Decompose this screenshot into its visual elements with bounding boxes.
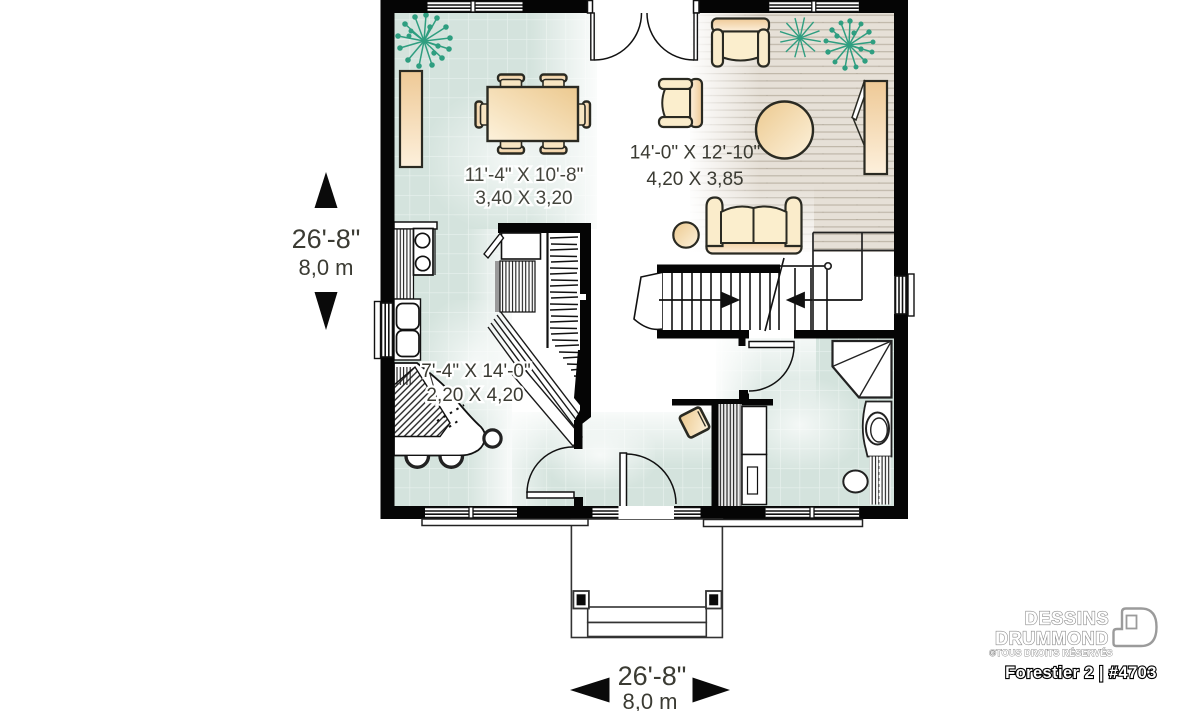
svg-text:8,0 m: 8,0 m <box>622 689 677 711</box>
svg-text:14'-0" X 12'-10": 14'-0" X 12'-10" <box>630 143 761 164</box>
svg-text:3,40 X 3,20: 3,40 X 3,20 <box>475 188 572 209</box>
svg-text:11'-4" X 10'-8": 11'-4" X 10'-8" <box>465 165 584 186</box>
svg-text:DESSINS: DESSINS <box>1025 609 1110 629</box>
svg-text:7'-4" X 14'-0": 7'-4" X 14'-0" <box>421 361 530 382</box>
svg-text:4,20 X 3,85: 4,20 X 3,85 <box>646 169 743 190</box>
svg-text:Forestier 2 | #4703: Forestier 2 | #4703 <box>1005 664 1157 682</box>
svg-text:2,20 X 4,20: 2,20 X 4,20 <box>426 385 523 406</box>
svg-text:26'-8": 26'-8" <box>292 224 361 254</box>
svg-text:26'-8": 26'-8" <box>618 661 687 691</box>
svg-text:DRUMMOND: DRUMMOND <box>995 629 1109 649</box>
svg-text:©TOUS DROITS RÉSERVÉS: ©TOUS DROITS RÉSERVÉS <box>989 648 1113 658</box>
svg-text:8,0 m: 8,0 m <box>298 255 353 280</box>
